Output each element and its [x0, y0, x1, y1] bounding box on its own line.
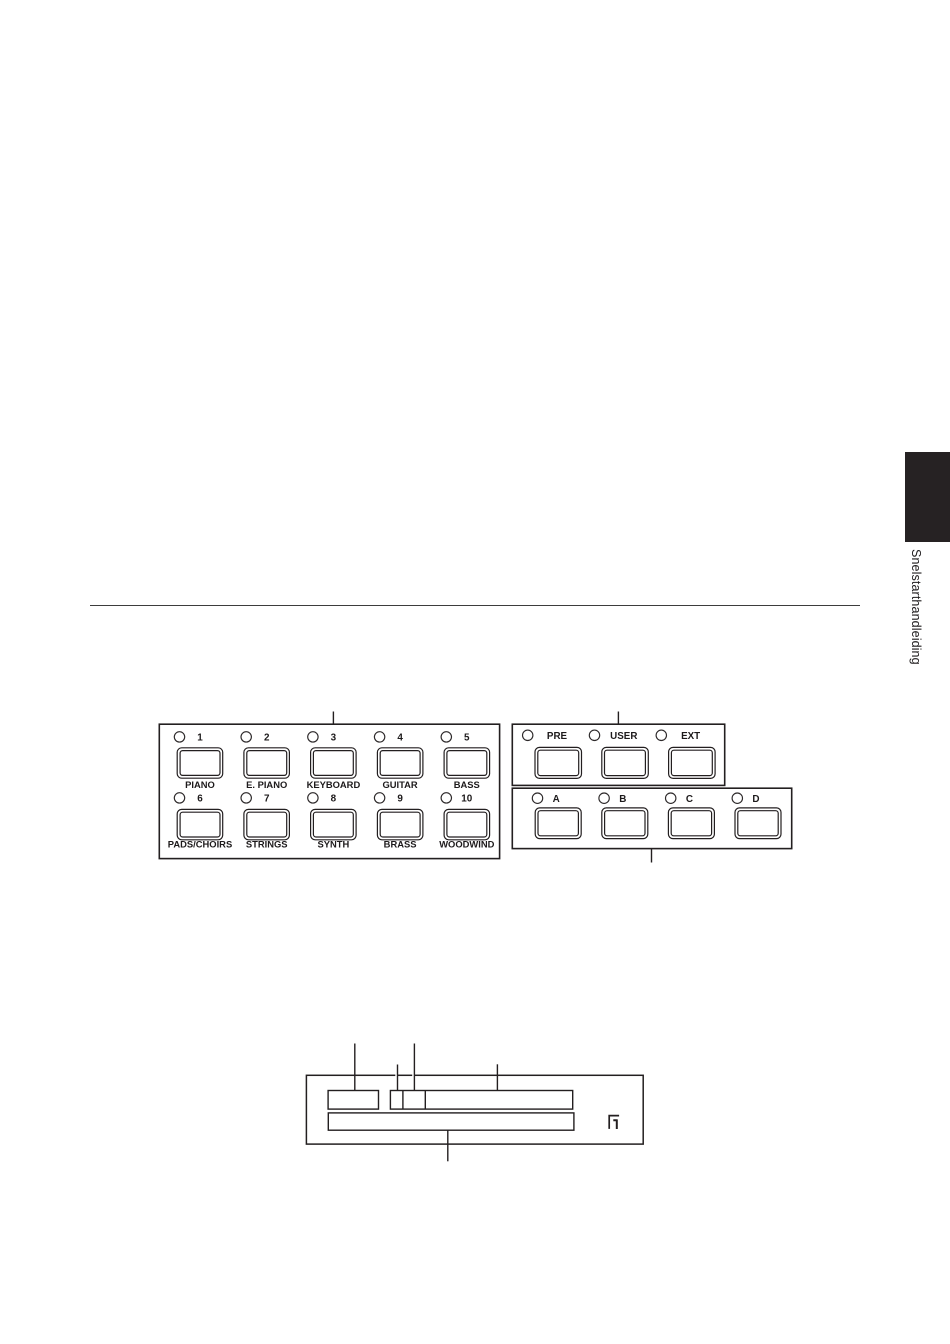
svg-text:4: 4: [397, 733, 403, 744]
svg-text:C: C: [686, 794, 693, 805]
svg-text:D: D: [752, 794, 759, 805]
svg-text:PRE: PRE: [547, 731, 568, 742]
svg-text:STRINGS: STRINGS: [246, 838, 288, 849]
svg-text:BRASS: BRASS: [384, 838, 417, 849]
svg-text:6: 6: [197, 794, 203, 805]
svg-text:7: 7: [264, 794, 270, 805]
svg-text:EXT: EXT: [681, 731, 700, 742]
svg-text:10: 10: [461, 794, 472, 805]
svg-text:KEYBOARD: KEYBOARD: [307, 779, 361, 790]
svg-text:PADS/CHOIRS: PADS/CHOIRS: [168, 838, 232, 849]
svg-text:BASS: BASS: [454, 779, 480, 790]
svg-text:2: 2: [264, 733, 270, 744]
svg-text:E. PIANO: E. PIANO: [246, 779, 287, 790]
svg-text:USER: USER: [610, 731, 637, 742]
svg-text:WOODWIND: WOODWIND: [439, 838, 494, 849]
svg-text:B: B: [619, 794, 626, 805]
svg-text:3: 3: [331, 733, 337, 744]
svg-text:8: 8: [331, 794, 337, 805]
svg-text:5: 5: [464, 733, 470, 744]
svg-text:1: 1: [197, 733, 203, 744]
svg-text:A: A: [553, 794, 560, 805]
svg-text:SYNTH: SYNTH: [318, 838, 350, 849]
svg-text:GUITAR: GUITAR: [382, 779, 417, 790]
svg-text:9: 9: [397, 794, 403, 805]
svg-text:PIANO: PIANO: [185, 779, 215, 790]
